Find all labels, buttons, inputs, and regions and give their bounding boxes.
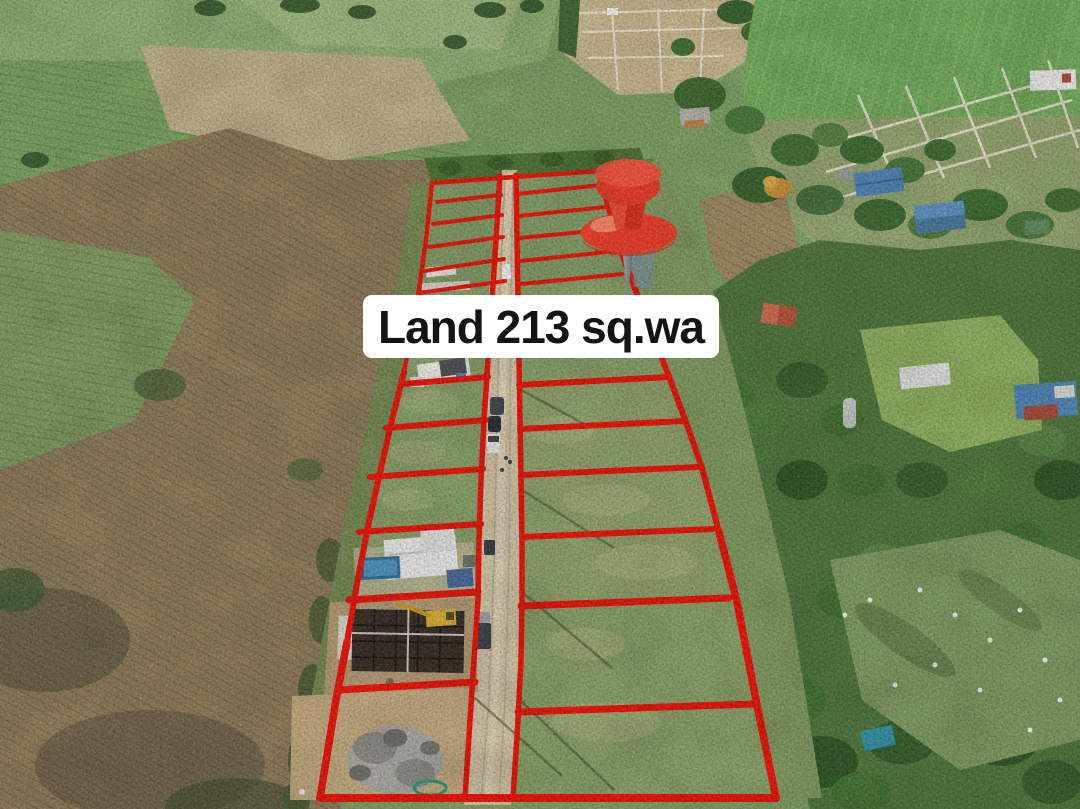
land-area-label: Land 213 sq.wa: [363, 295, 719, 358]
light-grain-overlay: [0, 0, 1080, 809]
aerial-photo-canvas: [0, 0, 1080, 809]
aerial-photo: Land 213 sq.wa: [0, 0, 1080, 809]
